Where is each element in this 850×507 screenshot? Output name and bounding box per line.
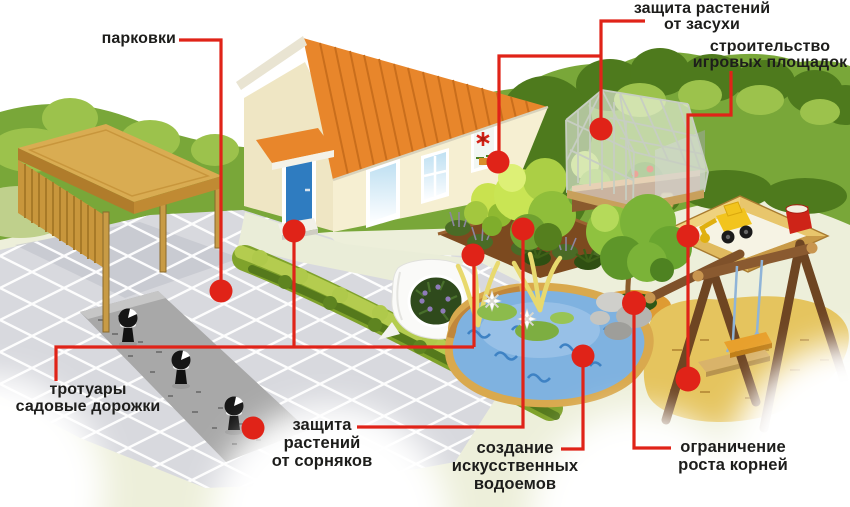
label-root-growth-restriction: ограничение роста корней [672,438,794,474]
dot-window-plant [487,151,510,174]
dot-garden-bed [512,218,535,241]
label-text: растений [258,434,386,452]
label-text: игровых площадок [690,55,850,71]
label-text: садовые дорожки [0,398,176,415]
window-tall [366,158,400,228]
label-text: защита [258,416,386,434]
dot-garden-path [462,244,485,267]
window-sash [421,148,449,204]
label-text: роста корней [672,456,794,474]
dot-pond [572,345,595,368]
illustration [0,0,850,507]
dot-sandbox [677,225,700,248]
garden-landscaping-diagram: парковки защита растений от засухи строи… [0,0,850,507]
label-artificial-ponds: создание искусственных водоемов [440,439,590,493]
dot-door-path [283,220,306,243]
dot-greenhouse [590,118,613,141]
label-text: строительство [690,39,850,55]
dot-swing [676,367,701,392]
label-text: ограничение [672,438,794,456]
label-text: создание [440,439,590,457]
dot-parking [210,280,233,303]
label-text: водоемов [440,475,590,493]
dot-tree-roots [622,291,646,315]
label-text: парковки [50,31,176,47]
label-drought-protection: защита растений от засухи [612,1,792,32]
label-playground-construction: строительство игровых площадок [690,39,850,70]
label-text: защита растений [612,1,792,17]
label-text: искусственных [440,457,590,475]
label-weed-protection: защита растений от сорняков [258,416,386,470]
entrance-door [282,157,316,229]
label-parking: парковки [50,31,176,47]
label-text: от сорняков [258,452,386,470]
label-sidewalks-garden-paths: тротуары садовые дорожки [0,381,176,415]
label-text: от засухи [612,17,792,33]
label-text: тротуары [0,381,176,398]
